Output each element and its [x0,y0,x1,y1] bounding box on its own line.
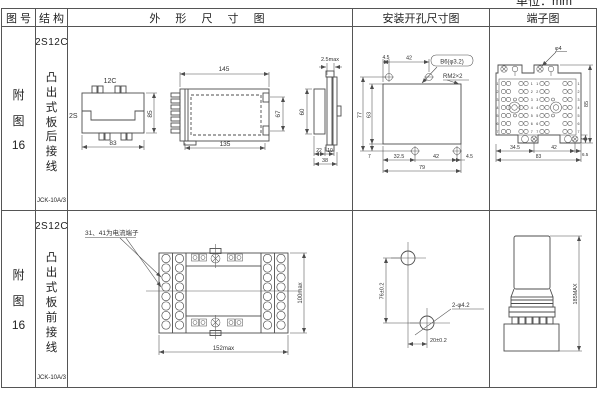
svg-text:7: 7 [536,130,538,134]
col-header-fig-no: 图 号 [2,9,36,27]
svg-text:7: 7 [578,130,580,134]
dim-label: 79 [419,165,425,171]
structure-cell-row2: 2S12C 凸出式板前接线 JCK-10A/3 [36,211,68,387]
fig-no-cell-row1: 附 图 16 [2,27,36,211]
dim-label: 34.5 [510,145,520,151]
svg-text:2: 2 [531,90,533,94]
svg-text:4: 4 [531,106,533,110]
relay-front-view [159,249,288,336]
terminal-cell-row1: 1 2 3 4 5 6 7 11 22 33 44 55 66 77 1 2 3… [490,27,596,211]
dim-label: 12C [104,78,117,85]
row1-outline-drawing: 12C 2S 85 83 145 135 67 2.5max 60 22 10 … [68,27,353,211]
socket-outline [496,65,581,143]
dim-label: 100max [298,282,304,303]
dimension-lines [85,238,307,356]
row2-mounting-drawing: 76±0.2 2-φ4.2 20±0.2 [353,211,490,387]
dimension-labels: 185MAX [573,283,579,304]
dim-label: 135 [220,141,231,148]
svg-text:5: 5 [536,114,538,118]
dim-label: 85 [147,110,154,118]
fig-char: 图 [12,292,24,309]
svg-text:4: 4 [536,106,538,110]
row1-terminal-drawing: 1 2 3 4 5 6 7 11 22 33 44 55 66 77 1 2 3… [490,27,596,211]
svg-text:6: 6 [497,122,499,126]
svg-text:3: 3 [497,98,499,102]
dim-label: 20±0.2 [430,338,447,344]
dim-label: 145 [219,66,230,73]
relay-side-view [171,89,269,145]
hole-spec-label: B6(φ3.2) [440,60,464,66]
relay-profile-view [314,71,341,151]
svg-text:2: 2 [578,90,580,94]
dim-label: 2S [69,113,78,120]
panel-cutout [383,84,461,144]
structure-type: JCK-10A/3 [37,198,66,204]
svg-text:1: 1 [578,82,580,86]
svg-text:1: 1 [497,82,499,86]
dim-label: 32.5 [394,154,405,160]
dim-label: 83 [109,140,117,147]
dim-label: 60 [300,108,306,115]
svg-text:4: 4 [578,106,580,110]
dimension-lines [360,55,473,173]
col-header-mounting: 安装开孔尺寸图 [353,9,490,27]
dim-label: 85 [584,101,590,107]
svg-text:6: 6 [578,122,580,126]
dim-label: 2.5max [321,57,339,63]
structure-cell-row1: 2S12C 凸出式板后接线 JCK-10A/3 [36,27,68,211]
svg-text:6: 6 [531,122,533,126]
dim-label: 152max [213,346,234,352]
hole-spec-label: 2-φ4.2 [452,303,470,309]
dim-label: 42 [433,154,439,160]
dim-label: 4.5 [383,55,390,61]
dim-label: 22 [316,148,322,154]
relay-side-silhouette [504,236,559,351]
svg-text:2: 2 [536,90,538,94]
col-header-structure: 结 构 [36,9,68,27]
svg-text:1: 1 [536,82,538,86]
dim-label: 7 [368,154,371,160]
row2-outline-drawing: 31、41为电流端子 100max 152max [68,211,353,387]
thread-spec-label: RM2×2 [443,74,463,80]
dim-label: 63 [367,112,373,118]
row1-mounting-drawing: 4.5 42 B6(φ3.2) RM2×2 77 63 7 32.5 42 4.… [353,27,490,211]
outline-cell-row2: 31、41为电流端子 100max 152max [68,211,353,387]
svg-text:5: 5 [531,114,533,118]
dim-label: 42 [406,56,412,62]
fig-char: 附 [12,266,24,283]
dim-label: 77 [358,112,364,118]
dimension-lines [383,258,484,344]
svg-text:7: 7 [497,130,499,134]
dim-label: 38 [322,158,328,164]
drawing-table: 图 号 结 构 外 形 尺 寸 图 安装开孔尺寸图 端子图 附 图 16 2S1… [1,8,597,388]
fig-number: 16 [12,138,25,152]
col-header-terminal: 端子图 [490,9,596,27]
mounting-cell-row2: 76±0.2 2-φ4.2 20±0.2 [353,211,490,387]
svg-text:3: 3 [531,98,533,102]
fig-number: 16 [12,318,25,332]
fig-char: 附 [12,86,24,103]
structure-desc: 凸出式板后接线 [45,71,58,176]
svg-text:4: 4 [497,106,499,110]
mounting-cell-row1: 4.5 42 B6(φ3.2) RM2×2 77 63 7 32.5 42 4.… [353,27,490,211]
svg-text:6: 6 [536,122,538,126]
mounting-holes [384,72,462,156]
structure-model: 2S12C [36,221,68,232]
dim-label: 76±0.2 [380,283,386,300]
row2-terminal-drawing: 185MAX [490,211,596,387]
mounting-screws [501,66,578,143]
outline-cell-row1: 12C 2S 85 83 145 135 67 2.5max 60 22 10 … [68,27,353,211]
svg-text:5: 5 [578,114,580,118]
screw-label: φ4 [555,46,562,52]
dimension-labels: 4.5 42 B6(φ3.2) RM2×2 77 63 7 32.5 42 4.… [358,55,474,171]
structure-desc: 凸出式板前接线 [45,251,58,356]
svg-text:3: 3 [578,98,580,102]
dim-label: 67 [275,110,282,118]
fig-no-cell-row2: 附 图 16 [2,211,36,387]
svg-text:5: 5 [497,114,499,118]
dim-label: 42 [551,145,557,151]
note-label: 31、41为电流端子 [85,228,139,237]
col-header-outline: 外 形 尺 寸 图 [68,9,353,27]
svg-text:2: 2 [497,90,499,94]
screw-clusters [146,244,301,339]
svg-text:7: 7 [531,130,533,134]
dimension-labels: 76±0.2 2-φ4.2 20±0.2 [380,283,471,344]
fig-char: 图 [12,112,24,129]
dim-label: 4.5 [466,154,473,160]
dim-label: 10 [327,148,333,154]
terminal-cell-row2: 185MAX [490,211,596,387]
dim-label: 83 [536,154,542,160]
svg-text:3: 3 [536,98,538,102]
dim-label: 6.5 [582,152,589,157]
structure-model: 2S12C [36,37,68,48]
relay-top-view [82,86,144,140]
terminal-columns [162,254,285,329]
svg-text:1: 1 [531,82,533,86]
dim-label: 185MAX [573,283,579,304]
structure-type: JCK-10A/3 [37,375,66,381]
